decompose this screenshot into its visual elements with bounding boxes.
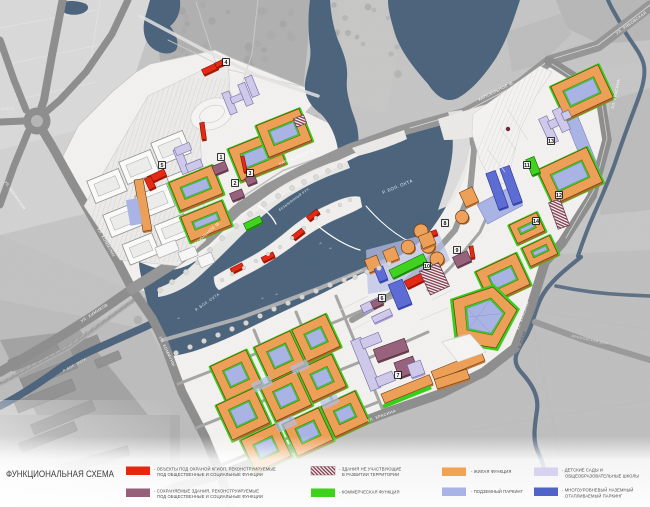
svg-text:- КОММЕРЧЕСКАЯ ФУНКЦИЯ: - КОММЕРЧЕСКАЯ ФУНКЦИЯ [339,490,400,495]
svg-text:- ПОДЗЕМНЫЙ ПАРКИНГ: - ПОДЗЕМНЫЙ ПАРКИНГ [471,489,524,494]
svg-text:- МНОГОУРОВНЕВЫЙ НАЗЕМНЫЙ: - МНОГОУРОВНЕВЫЙ НАЗЕМНЫЙ [562,488,633,493]
svg-text:ФУНКЦИОНАЛЬНАЯ СХЕМА: ФУНКЦИОНАЛЬНАЯ СХЕМА [6,469,115,479]
svg-text:ПОД ОБЩЕСТВЕННЫЕ И СОЦИАЛЬНЫЕ: ПОД ОБЩЕСТВЕННЫЕ И СОЦИАЛЬНЫЕ ФУНКЦИИ [157,472,263,477]
svg-text:- ЗДАНИЯ НЕ УЧАСТВУЮЩИЕ: - ЗДАНИЯ НЕ УЧАСТВУЮЩИЕ [339,467,402,472]
svg-text:- ОБЪЕКТЫ ПОД ОХРАНОЙ КГИОП, Р: - ОБЪЕКТЫ ПОД ОХРАНОЙ КГИОП, РЕКОНСТРУИР… [154,467,276,472]
svg-text:- СОХРАНЯЕМЫЕ ЗДАНИЯ, РЕКОНСТР: - СОХРАНЯЕМЫЕ ЗДАНИЯ, РЕКОНСТРУИРУЕМЫЕ [154,489,259,494]
svg-text:ОБЩЕОБРАЗОВАТЕЛЬНЫЕ ШКОЛЫ: ОБЩЕОБРАЗОВАТЕЛЬНЫЕ ШКОЛЫ [565,474,639,479]
svg-text:ПОД ОБЩЕСТВЕННЫЕ И СОЦИАЛЬНЫЕ: ПОД ОБЩЕСТВЕННЫЕ И СОЦИАЛЬНЫЕ ФУНКЦИИ [157,494,263,499]
svg-text:- ДЕТСКИЕ САДЫ И: - ДЕТСКИЕ САДЫ И [562,468,603,473]
svg-text:В РАЗВИТИИ ТЕРРИТОРИИ: В РАЗВИТИИ ТЕРРИТОРИИ [342,472,399,477]
svg-text:- ЖИЛАЯ ФУНКЦИЯ: - ЖИЛАЯ ФУНКЦИЯ [471,469,511,474]
svg-text:ОТАПЛИВАЕМЫЙ ПАРКИНГ: ОТАПЛИВАЕМЫЙ ПАРКИНГ [565,494,623,499]
